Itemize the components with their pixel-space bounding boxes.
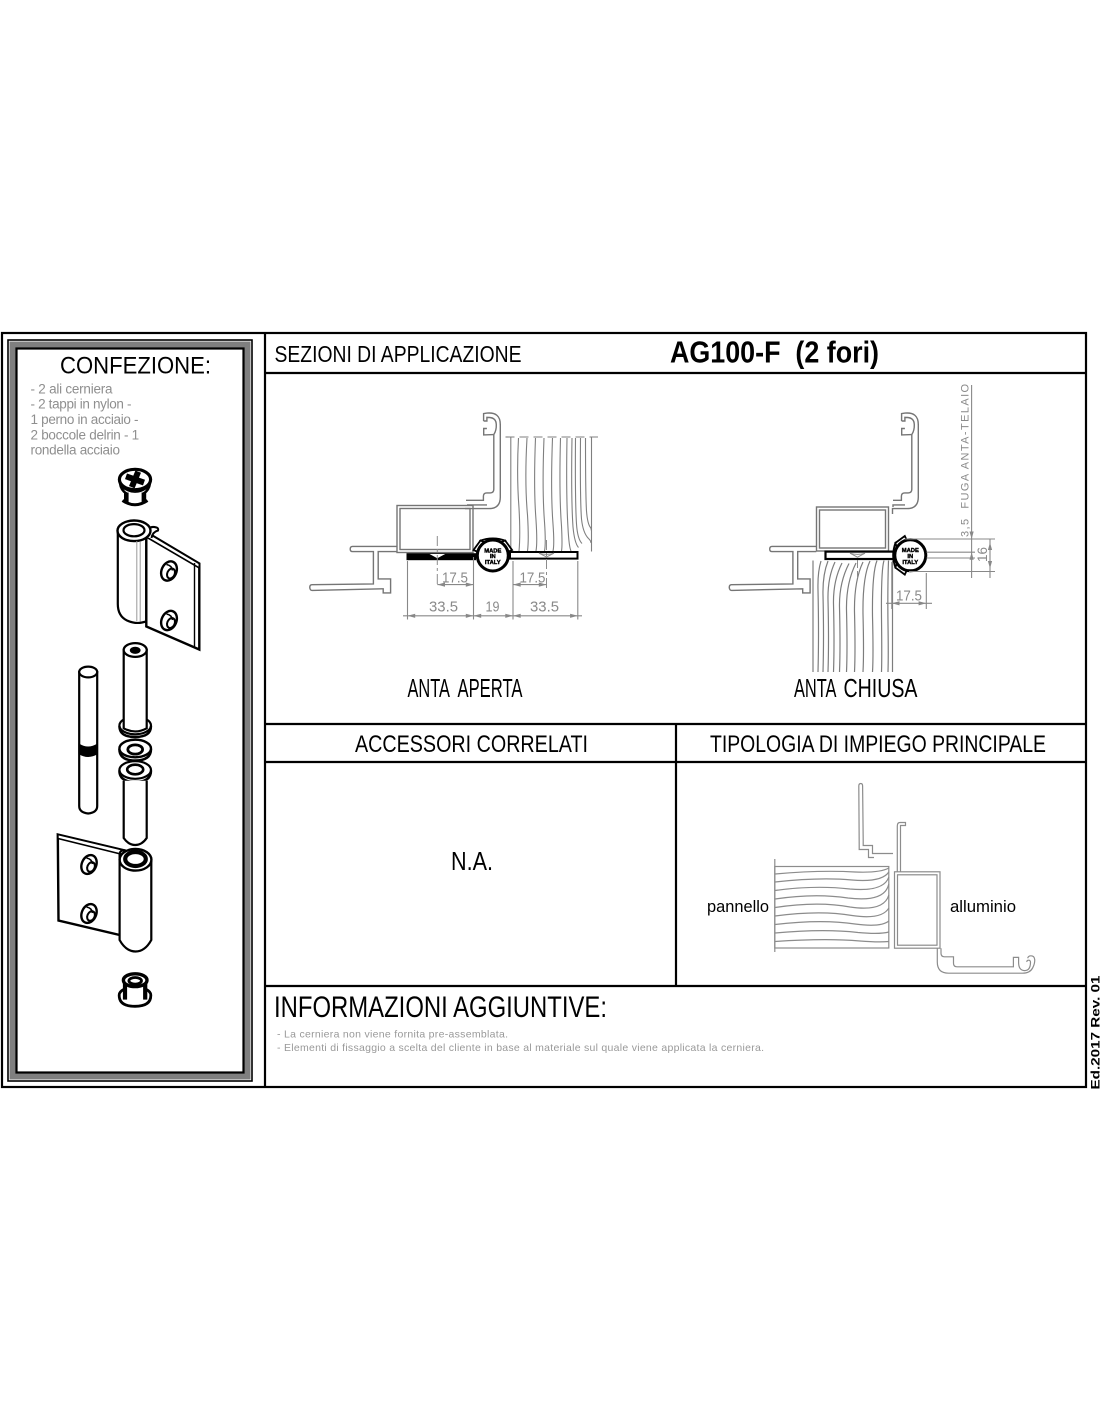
svg-text:ITALY: ITALY xyxy=(485,560,501,566)
svg-text:AG100-F (2 fori): AG100-F (2 fori) xyxy=(670,336,879,370)
svg-text:N.A.: N.A. xyxy=(451,846,493,876)
svg-text:rondella acciaio: rondella acciaio xyxy=(31,442,121,457)
svg-text:- 2 ali cerniera: - 2 ali cerniera xyxy=(31,382,113,397)
svg-text:3,5 FUGA ANTA-TELAIO: 3,5 FUGA ANTA-TELAIO xyxy=(960,382,972,537)
svg-text:33.5: 33.5 xyxy=(429,600,458,616)
svg-text:ANTA: ANTA xyxy=(408,673,451,703)
svg-text:INFORMAZIONI AGGIUNTIVE:: INFORMAZIONI AGGIUNTIVE: xyxy=(274,991,607,1024)
svg-text:2 boccole delrin - 1: 2 boccole delrin - 1 xyxy=(31,427,140,442)
svg-text:1 perno in acciaio -: 1 perno in acciaio - xyxy=(31,412,139,427)
svg-text:pannello: pannello xyxy=(707,897,769,916)
svg-text:- Elementi di fissaggio a scel: - Elementi di fissaggio a scelta del cli… xyxy=(277,1042,764,1054)
svg-text:APERTA: APERTA xyxy=(458,673,523,703)
svg-text:CONFEZIONE:: CONFEZIONE: xyxy=(60,353,211,380)
svg-text:- 2 tappi in nylon -: - 2 tappi in nylon - xyxy=(31,397,132,412)
svg-text:17.5: 17.5 xyxy=(896,589,922,605)
svg-text:CHIUSA: CHIUSA xyxy=(844,673,918,703)
svg-text:16: 16 xyxy=(975,547,990,562)
svg-text:17.5: 17.5 xyxy=(442,571,468,587)
svg-text:19: 19 xyxy=(486,600,500,616)
svg-text:Ed.2017 Rev. 01: Ed.2017 Rev. 01 xyxy=(1089,975,1100,1089)
svg-text:ANTA: ANTA xyxy=(794,673,837,703)
svg-text:- La cerniera non viene fornit: - La cerniera non viene fornita pre-asse… xyxy=(277,1029,508,1041)
svg-text:33.5: 33.5 xyxy=(530,600,559,616)
svg-text:TIPOLOGIA DI IMPIEGO PRINCIPAL: TIPOLOGIA DI IMPIEGO PRINCIPALE xyxy=(710,731,1046,758)
svg-text:SEZIONI DI APPLICAZIONE: SEZIONI DI APPLICAZIONE xyxy=(275,341,522,367)
svg-text:ITALY: ITALY xyxy=(902,560,918,566)
svg-text:ACCESSORI CORRELATI: ACCESSORI CORRELATI xyxy=(355,731,588,758)
svg-text:17.5: 17.5 xyxy=(520,571,546,587)
svg-text:alluminio: alluminio xyxy=(950,897,1016,916)
